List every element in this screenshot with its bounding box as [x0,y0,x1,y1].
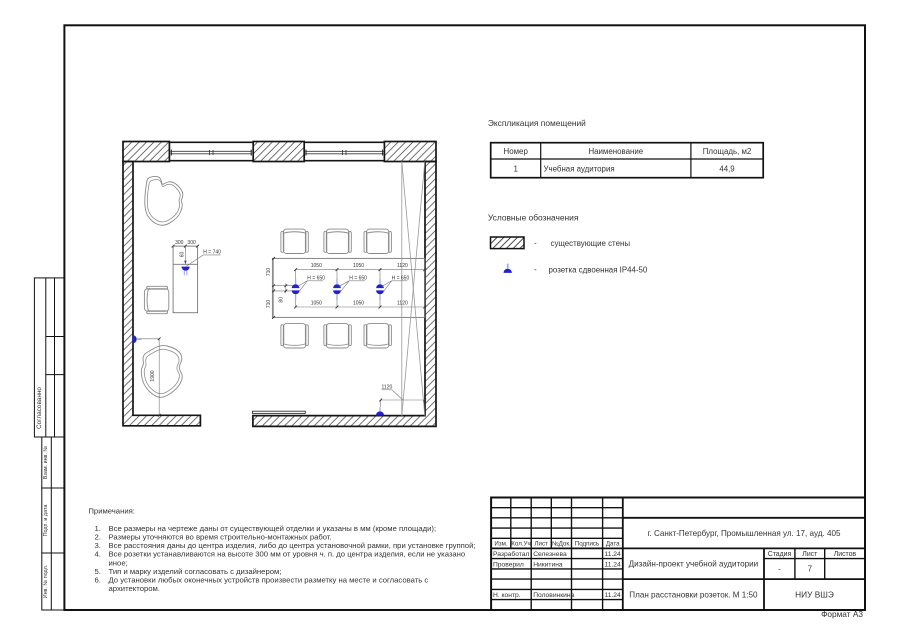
svg-text:План расстановки розеток. М 1:: План расстановки розеток. М 1:50 [629,591,758,600]
svg-text:Разработал: Разработал [493,550,529,558]
svg-text:11.24: 11.24 [605,551,622,558]
svg-text:80: 80 [279,297,285,303]
svg-text:Условные обозначения: Условные обозначения [488,212,578,222]
svg-text:44,9: 44,9 [719,164,735,173]
svg-text:Согласованно: Согласованно [36,387,43,429]
svg-text:НИУ ВШЭ: НИУ ВШЭ [795,590,834,600]
svg-text:Кол.Уч: Кол.Уч [511,541,530,548]
svg-text:1050: 1050 [353,263,364,269]
svg-text:Лист: Лист [802,551,818,558]
svg-text:1900: 1900 [150,370,156,381]
svg-text:Учебная аудитория: Учебная аудитория [544,164,615,173]
svg-text:Примечания:: Примечания: [88,507,135,516]
svg-text:Никитина: Никитина [533,561,563,568]
svg-text:Изм.: Изм. [494,541,508,548]
svg-text:Все розетки устанавливаются на: Все розетки устанавливаются на высоте 30… [109,550,466,559]
svg-text:11.24: 11.24 [605,592,622,599]
svg-text:Н. контр.: Н. контр. [493,592,521,599]
svg-text:1050: 1050 [311,300,322,306]
svg-text:Стадия: Стадия [768,551,792,558]
svg-text:-: - [534,239,537,248]
svg-text:Формат А3: Формат А3 [821,609,863,619]
svg-text:Селезнева: Селезнева [533,551,567,558]
svg-text:Взам. инв. №: Взам. инв. № [43,446,49,480]
svg-text:Половинкина: Половинкина [533,592,574,599]
svg-text:архитектором.: архитектором. [109,584,160,593]
svg-text:11.24: 11.24 [605,561,622,568]
svg-text:300: 300 [175,240,184,246]
svg-text:Экспликация помещений: Экспликация помещений [488,118,586,128]
svg-text:№Док.: №Док. [552,541,571,548]
svg-text:Наименование: Наименование [588,147,643,156]
svg-text:Лист: Лист [534,541,548,548]
svg-text:Площадь, м2: Площадь, м2 [703,147,752,156]
svg-text:-: - [778,565,781,574]
svg-text:Номер: Номер [504,147,529,156]
svg-text:Подп. и дата: Подп. и дата [43,505,49,537]
svg-text:1120: 1120 [382,385,393,391]
svg-text:710: 710 [266,300,272,309]
svg-text:Подпись: Подпись [575,541,600,548]
svg-text:Дизайн-проект учебной аудитори: Дизайн-проект учебной аудитории [629,560,759,569]
svg-text:7: 7 [808,565,812,574]
svg-text:-: - [534,265,537,274]
svg-text:г. Санкт-Петербург, Промышленн: г. Санкт-Петербург, Промышленная ул. 17,… [648,529,841,538]
svg-text:Проверил: Проверил [493,561,524,568]
svg-text:Листов: Листов [834,551,857,558]
svg-text:4.: 4. [95,550,101,559]
svg-text:1120: 1120 [397,300,408,306]
svg-text:300: 300 [187,240,196,246]
svg-text:розетка сдвоенная IP44-50: розетка сдвоенная IP44-50 [549,265,648,274]
svg-text:Дата: Дата [606,541,620,548]
svg-text:710: 710 [266,268,272,277]
svg-text:6.: 6. [95,576,101,585]
svg-text:Инв. № подл.: Инв. № подл. [43,565,49,599]
svg-text:1: 1 [514,164,518,173]
svg-text:60: 60 [179,252,185,258]
svg-text:1050: 1050 [311,263,322,269]
svg-text:существующие стены: существующие стены [551,239,631,248]
svg-text:1050: 1050 [353,300,364,306]
svg-text:1120: 1120 [397,263,408,269]
